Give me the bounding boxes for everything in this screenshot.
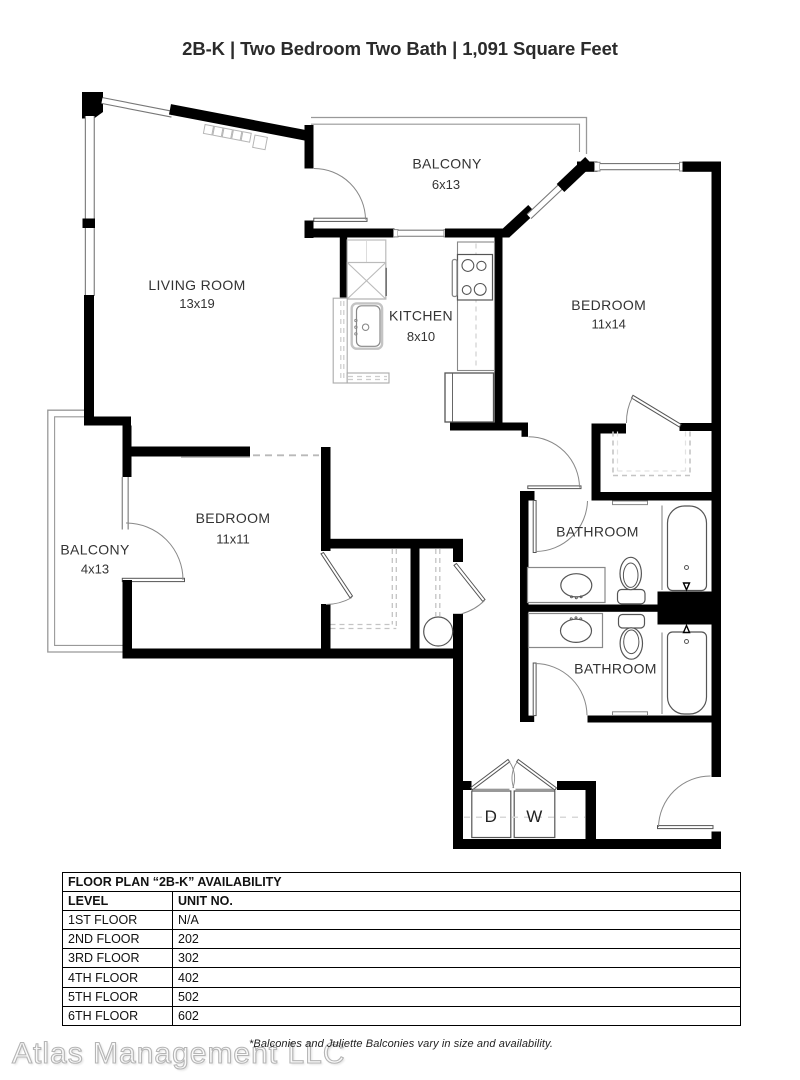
svg-text:BALCONY: BALCONY: [412, 156, 482, 172]
svg-text:BALCONY: BALCONY: [60, 542, 130, 558]
svg-text:11x11: 11x11: [216, 532, 250, 547]
svg-text:LIVING ROOM: LIVING ROOM: [148, 277, 245, 293]
svg-text:13x19: 13x19: [179, 296, 214, 311]
svg-text:KITCHEN: KITCHEN: [389, 307, 453, 323]
svg-text:BATHROOM: BATHROOM: [574, 661, 657, 677]
svg-text:BEDROOM: BEDROOM: [571, 297, 646, 313]
svg-text:6x13: 6x13: [432, 177, 460, 192]
svg-text:11x14: 11x14: [591, 316, 625, 331]
svg-text:W: W: [526, 807, 543, 826]
svg-text:BEDROOM: BEDROOM: [196, 510, 271, 526]
svg-text:D: D: [485, 807, 498, 826]
svg-text:8x10: 8x10: [407, 329, 435, 344]
svg-text:BATHROOM: BATHROOM: [556, 524, 639, 540]
svg-text:4x13: 4x13: [81, 562, 109, 577]
